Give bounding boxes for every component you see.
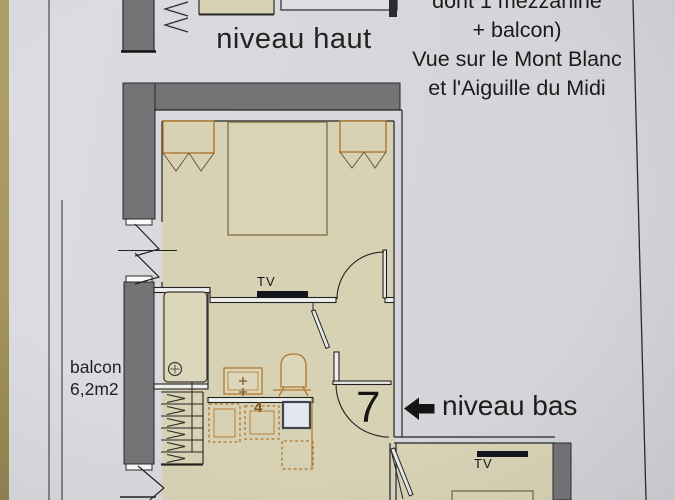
- lower-level-label: niveau bas: [442, 390, 577, 422]
- tv-label-bedroom: TV: [257, 274, 276, 289]
- bed: [452, 491, 533, 500]
- upper-level-label: niveau haut: [216, 23, 372, 56]
- upper-wall: [123, 0, 154, 51]
- left-arrow-icon: [404, 398, 435, 421]
- balcony-label: balcon 6,2m2: [70, 356, 122, 400]
- wall-segment: [553, 443, 571, 500]
- note-line-3: Vue sur le Mont Blanc: [398, 45, 636, 74]
- frame-cap: [126, 219, 152, 225]
- note-line-2: + balcon): [398, 16, 636, 45]
- sink-unit: [224, 368, 262, 396]
- balcony-area: 6,2m2: [70, 378, 122, 400]
- niveau-bas-plan: [118, 83, 402, 500]
- upper-table: [281, 0, 397, 10]
- unit-number: 7: [356, 383, 380, 433]
- tv-marker-bedroom: [257, 291, 308, 298]
- floor-plan-photo: niveau haut dont 1 mezzanine + balcon) V…: [0, 0, 675, 500]
- upper-wall-stub: [389, 0, 397, 17]
- tv-label-lower-room: TV: [474, 456, 493, 471]
- left-wall-lower: [124, 282, 154, 464]
- appliance-number-label: 4: [254, 399, 262, 416]
- frame-cap: [126, 276, 152, 282]
- upper-window-icon: [165, 18, 188, 32]
- upper-window-icon: [165, 2, 188, 16]
- balcony-railing: [49, 0, 62, 500]
- upper-furniture: [199, 0, 274, 14]
- balcony-name: balcon: [70, 356, 122, 378]
- note-line-4: et l'Aiguille du Midi: [398, 74, 636, 103]
- note-line-1: dont 1 mezzanine: [398, 0, 636, 16]
- top-wall: [123, 83, 400, 110]
- appliance-white: [283, 402, 310, 428]
- balcony-door-icon: [120, 466, 164, 500]
- description-note: dont 1 mezzanine + balcon) Vue sur le Mo…: [398, 0, 636, 103]
- bed: [228, 122, 327, 235]
- left-wall-upper: [123, 83, 155, 219]
- shower: [164, 292, 207, 382]
